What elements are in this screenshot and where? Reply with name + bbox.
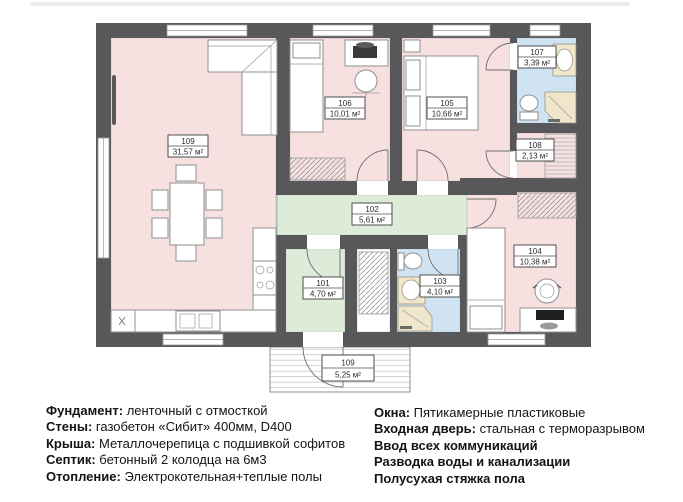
spec-line: Фундамент: ленточный с отмосткой [46,403,345,419]
svg-text:5,25 м²: 5,25 м² [335,371,361,380]
window-107-top [530,25,560,36]
room-label-109: 109 31,57 м² [168,135,208,157]
spec-value: Пятикамерные пластиковые [414,405,586,420]
svg-text:107: 107 [530,48,544,57]
spec-label: Полусухая стяжка пола [374,471,525,486]
room-label-107: 107 3,39 м² [518,46,556,68]
spec-value: Электрокотельная+теплые полы [124,469,322,484]
room-label-porch: 109 5,25 м² [322,355,374,381]
chair-icon [152,190,168,210]
spec-value: газобетон «Сибит» 400мм, D400 [96,419,292,434]
room-label-103: 103 4,10 м² [420,275,460,297]
mouse-icon [540,323,558,330]
svg-text:4,70 м²: 4,70 м² [310,290,336,299]
wardrobe-hatch-icon [290,158,345,180]
spec-line: Входная дверь: стальная с терморазрывом [374,421,645,437]
svg-text:104: 104 [528,247,542,256]
svg-text:5,61 м²: 5,61 м² [359,216,385,225]
svg-text:102: 102 [365,205,379,214]
laptop-icon [536,310,564,320]
room-label-106: 106 10,01 м² [325,97,365,119]
svg-text:106: 106 [338,99,352,108]
wall-107-108 [517,123,576,133]
svg-text:4,10 м²: 4,10 м² [427,288,453,297]
svg-text:101: 101 [316,279,330,288]
toilet-icon [398,253,422,270]
spec-line: Отопление: Электрокотельная+теплые полы [46,469,345,485]
room-label-105: 105 10,66 м² [427,97,467,119]
spec-label: Фундамент: [46,403,123,418]
spec-line: Разводка воды и канализации [374,454,645,470]
window-kitchen-bottom [163,334,223,345]
window-104-bottom [488,334,545,345]
screenshot-root: 109 31,57 м² 106 10,01 м² 105 10,66 м² 1… [0,0,683,502]
room-label-108: 108 2,13 м² [516,139,554,161]
spec-line: Полусухая стяжка пола [374,471,645,487]
spec-label: Септик: [46,452,96,467]
spec-line: Септик: бетонный 2 колодца на 6м3 [46,452,345,468]
desk-icon [345,40,388,66]
svg-text:108: 108 [528,141,542,150]
svg-text:3,39 м²: 3,39 м² [524,59,550,68]
room-label-104: 104 10,38 м² [514,245,556,267]
spec-line: Крыша: Металлочерепица с подшивкой софит… [46,436,345,452]
spec-label: Входная дверь: [374,421,476,436]
spec-line: Окна: Пятикамерные пластиковые [374,405,645,421]
wall-living-106 [276,38,290,181]
room-label-102: 102 5,61 м² [352,203,392,225]
spec-value: стальная с терморазрывом [480,421,645,436]
wall-106-105 [390,38,402,181]
svg-text:109: 109 [181,137,195,146]
spec-label: Разводка воды и канализации [374,454,570,469]
wardrobe-hatch-icon [359,252,388,314]
specs-right-column: Окна: Пятикамерные пластиковые Входная д… [374,405,645,487]
chair-icon [206,190,222,210]
spec-label: Ввод всех коммуникаций [374,438,538,453]
kitchen-counter [111,310,276,332]
svg-text:103: 103 [433,277,447,286]
chair-icon [176,165,196,181]
floor-plan: 109 31,57 м² 106 10,01 м² 105 10,66 м² 1… [0,0,683,400]
spec-label: Отопление: [46,469,121,484]
svg-text:10,66 м²: 10,66 м² [432,110,463,119]
chair-icon [176,245,196,261]
cabinet-icon [111,310,135,332]
toilet-icon [520,95,538,120]
wall-101-niche [345,249,357,332]
chair-icon [206,218,222,238]
window-living-top [167,25,247,36]
spec-value: Металлочерепица с подшивкой софитов [99,436,345,451]
room-label-101: 101 4,70 м² [303,277,343,299]
window-105-top [433,25,490,36]
svg-text:31,57 м²: 31,57 м² [173,148,204,157]
spec-label: Крыша: [46,436,95,451]
spec-line: Ввод всех коммуникаций [374,438,645,454]
wall-103-104 [460,249,467,332]
svg-text:10,01 м²: 10,01 м² [330,110,361,119]
wardrobe-hatch-icon [518,193,576,218]
kitchen-sink-icon [176,311,220,331]
spec-value: бетонный 2 колодца на 6м3 [99,452,266,467]
desk-icon [520,308,576,332]
single-bed-icon [290,40,323,132]
specs-left-column: Фундамент: ленточный с отмосткой Стены: … [46,403,345,485]
stove-icon [253,228,276,310]
spec-value: ленточный с отмосткой [127,403,268,418]
tv-icon [112,75,116,125]
spec-line: Стены: газобетон «Сибит» 400мм, D400 [46,419,345,435]
svg-text:10,38 м²: 10,38 м² [520,258,551,267]
spec-label: Стены: [46,419,92,434]
wall-108-104 [460,178,591,192]
wall-niche-103 [390,249,397,332]
corner-shower-icon [398,306,432,331]
svg-text:2,13 м²: 2,13 м² [522,152,548,161]
svg-text:109: 109 [341,359,355,368]
chair-icon [152,218,168,238]
window-106-top [313,25,373,36]
spec-label: Окна: [374,405,410,420]
svg-text:105: 105 [440,99,454,108]
window-living-left [98,138,109,258]
single-bed-icon [467,228,505,332]
